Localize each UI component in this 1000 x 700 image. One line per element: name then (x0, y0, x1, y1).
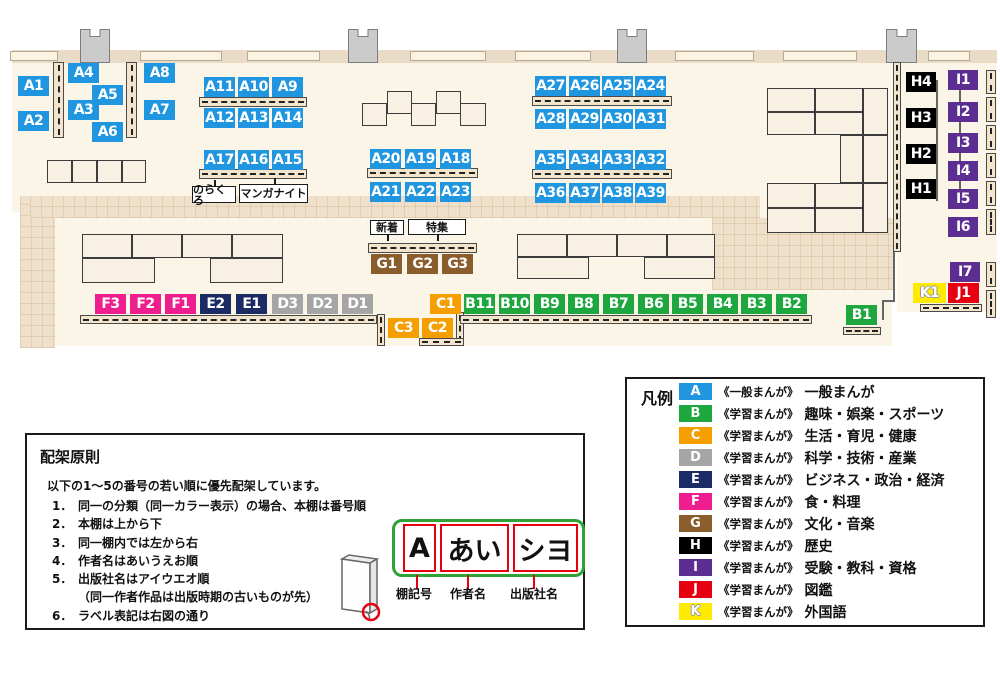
bookshelf-strip (199, 97, 307, 107)
shelf-label-g3: G3 (442, 254, 473, 274)
wall-line (893, 252, 895, 302)
legend-category-label: 図鑑 (805, 580, 833, 600)
principles-title: 配架原則 (40, 446, 100, 467)
legend-row-d: D《学習まんが》科学・技術・産業 (679, 449, 945, 466)
shelf-label-i2: I2 (948, 102, 978, 122)
shelf-label-a25: A25 (602, 76, 633, 96)
shelf-label-e1: E1 (236, 294, 267, 314)
shelf-label-h4: H4 (906, 72, 936, 92)
map-callout-3: 新着 (370, 220, 404, 235)
shelf-label-b3: B3 (741, 294, 772, 314)
shelf-label-a9: A9 (272, 77, 303, 97)
floor-map: 凡例 A《一般まんが》一般まんがB《学習まんが》趣味・娯楽・スポーツC《学習まん… (0, 0, 1000, 700)
furniture-block (767, 112, 815, 135)
shelf-label-a19: A19 (405, 149, 436, 169)
principle-number: 5． (52, 570, 78, 588)
wall-window (928, 51, 970, 61)
shelf-label-a1: A1 (18, 76, 49, 96)
shelf-label-a7: A7 (144, 100, 175, 120)
caption-publisher: 出版社名 (510, 585, 558, 602)
legend-scope: 《学習まんが》 (718, 494, 799, 510)
legend-row-j: J《学習まんが》図鑑 (679, 581, 945, 598)
shelf-label-a20: A20 (370, 149, 401, 169)
label-author: あい (440, 524, 509, 572)
shelf-label-a2: A2 (18, 111, 49, 131)
furniture-block (82, 234, 132, 258)
shelf-label-a8: A8 (144, 63, 175, 83)
callout-pointer (387, 235, 389, 241)
legend-scope: 《学習まんが》 (718, 428, 799, 444)
walkway (20, 196, 55, 348)
shelf-label-a4: A4 (68, 63, 99, 83)
furniture-block (767, 183, 815, 208)
shelf-label-i3: I3 (948, 133, 978, 153)
shelf-label-f2: F2 (130, 294, 161, 314)
legend-chip-d: D (679, 449, 712, 466)
map-callout-4: 特集 (408, 219, 466, 235)
legend-row-c: C《学習まんが》生活・育児・健康 (679, 427, 945, 444)
principle-item-3: 3．同一棚内では左から右 (52, 534, 366, 552)
furniture-block (767, 88, 815, 112)
shelf-label-a27: A27 (535, 76, 566, 96)
shelf-label-b9: B9 (534, 294, 565, 314)
legend-chip-g: G (679, 515, 712, 532)
principles-list: 1．同一の分類（同一カラー表示）の場合、本棚は番号順2．本棚は上から下3．同一棚… (52, 497, 366, 625)
furniture-block (72, 160, 97, 183)
floor-area (897, 212, 997, 312)
wall-window (515, 51, 591, 61)
legend-chip-a: A (679, 383, 712, 400)
bookshelf-strip (893, 62, 901, 252)
bookshelf-strip (53, 62, 64, 138)
wall-line (936, 80, 938, 201)
shelf-label-b7: B7 (603, 294, 634, 314)
shelf-label-a22: A22 (405, 182, 436, 202)
bookshelf-strip (368, 243, 477, 253)
legend-row-b: B《学習まんが》趣味・娯楽・スポーツ (679, 405, 945, 422)
bookshelf-strip (367, 168, 478, 178)
furniture-block (863, 183, 888, 233)
principle-text: 同一棚内では左から右 (78, 534, 198, 552)
furniture-block (517, 257, 589, 279)
bookshelf-strip (419, 338, 464, 346)
shelf-label-b11: B11 (464, 294, 495, 314)
wall-pillar (348, 29, 378, 63)
legend-row-i: I《学習まんが》受験・教科・資格 (679, 559, 945, 576)
legend-chip-h: H (679, 537, 712, 554)
legend-row-f: F《学習まんが》食・料理 (679, 493, 945, 510)
shelf-label-a24: A24 (635, 76, 666, 96)
legend-category-label: 受験・教科・資格 (805, 558, 917, 578)
label-shelf-code: A (403, 524, 436, 572)
legend-category-label: 生活・育児・健康 (805, 426, 917, 446)
shelf-label-d1: D1 (342, 294, 373, 314)
furniture-block (97, 160, 122, 183)
shelf-label-a6: A6 (92, 122, 123, 142)
wall-window (410, 51, 486, 61)
bookshelf-strip (199, 169, 307, 179)
wall-pillar (80, 29, 110, 63)
furniture-block (617, 234, 667, 257)
bookshelf-strip (532, 96, 672, 106)
furniture-block (667, 234, 715, 257)
legend-row-k: K《学習まんが》外国語 (679, 603, 945, 620)
wall-window (247, 51, 320, 61)
principle-number: 4． (52, 552, 78, 570)
shelf-label-e2: E2 (200, 294, 231, 314)
principle-item-2: 2．本棚は上から下 (52, 515, 366, 533)
legend-chip-b: B (679, 405, 712, 422)
furniture-block (815, 88, 863, 112)
legend-category-label: 趣味・娯楽・スポーツ (805, 404, 945, 424)
shelf-label-a31: A31 (635, 109, 666, 129)
callout-pointer (214, 180, 216, 186)
bookshelf-strip (986, 290, 996, 318)
principle-text: （同一作者作品は出版時期の古いものが先） (78, 588, 318, 606)
shelf-label-c3: C3 (388, 318, 419, 338)
furniture-block (132, 234, 182, 258)
furniture-block (567, 234, 617, 257)
legend-chip-f: F (679, 493, 712, 510)
shelf-label-d3: D3 (272, 294, 303, 314)
shelf-label-a29: A29 (569, 109, 600, 129)
legend-scope: 《学習まんが》 (718, 450, 799, 466)
furniture-block (460, 103, 486, 126)
shelf-label-b2: B2 (776, 294, 807, 314)
furniture-block (815, 208, 863, 233)
shelf-label-a36: A36 (535, 183, 566, 203)
furniture-block (815, 183, 863, 208)
wall-window (783, 51, 857, 61)
shelf-label-a15: A15 (272, 150, 303, 170)
legend-chip-c: C (679, 427, 712, 444)
principle-item-7: 6．ラベル表記は右図の通り (52, 607, 366, 625)
shelf-label-g2: G2 (407, 254, 438, 274)
shelf-label-a11: A11 (204, 77, 235, 97)
bookshelf-strip (986, 97, 996, 122)
wall-pillar (886, 29, 917, 63)
shelf-label-b8: B8 (568, 294, 599, 314)
bookshelf-strip (532, 169, 672, 179)
shelf-label-j1: J1 (948, 283, 979, 303)
legend-scope: 《学習まんが》 (718, 582, 799, 598)
shelf-label-i1: I1 (948, 70, 978, 90)
principle-number: 2． (52, 515, 78, 533)
legend-category-label: 科学・技術・産業 (805, 448, 917, 468)
shelf-label-k1: K1 (913, 283, 946, 303)
principle-text: 出版社名はアイウエオ順 (78, 570, 209, 588)
shelf-label-i6: I6 (948, 217, 978, 237)
legend-scope: 《学習まんが》 (718, 472, 799, 488)
legend-category-label: 食・料理 (805, 492, 861, 512)
legend-row-e: E《学習まんが》ビジネス・政治・経済 (679, 471, 945, 488)
bookshelf-strip (986, 181, 996, 206)
shelf-label-a10: A10 (238, 77, 269, 97)
principle-item-1: 1．同一の分類（同一カラー表示）の場合、本棚は番号順 (52, 497, 366, 515)
shelf-label-a37: A37 (569, 183, 600, 203)
shelf-label-a21: A21 (370, 182, 401, 202)
shelf-label-c2: C2 (422, 318, 453, 338)
shelf-label-g1: G1 (371, 254, 402, 274)
legend-scope: 《学習まんが》 (718, 516, 799, 532)
shelf-label-a30: A30 (602, 109, 633, 129)
wall-window (140, 51, 222, 61)
shelf-label-a13: A13 (238, 108, 269, 128)
bookshelf-strip (460, 315, 812, 324)
legend-category-label: 文化・音楽 (805, 514, 875, 534)
legend-panel: 凡例 A《一般まんが》一般まんがB《学習まんが》趣味・娯楽・スポーツC《学習まん… (625, 377, 985, 627)
callout-pointer (274, 178, 276, 184)
furniture-block (210, 258, 283, 283)
legend-scope: 《学習まんが》 (718, 560, 799, 576)
principle-text: 作者名はあいうえお順 (78, 552, 198, 570)
shelf-label-a28: A28 (535, 109, 566, 129)
shelf-label-h2: H2 (906, 144, 936, 164)
legend-row-g: G《学習まんが》文化・音楽 (679, 515, 945, 532)
furniture-block (232, 234, 283, 258)
principles-intro: 以下の1～5の番号の若い順に優先配架しています。 (47, 477, 326, 494)
furniture-block (517, 234, 567, 257)
principle-item-5: 5．出版社名はアイウエオ順 (52, 570, 366, 588)
legend-row-a: A《一般まんが》一般まんが (679, 383, 945, 400)
principles-panel: 配架原則 以下の1～5の番号の若い順に優先配架しています。 1．同一の分類（同一… (25, 433, 585, 630)
wall-window (675, 51, 754, 61)
bookshelf-strip (986, 125, 996, 150)
caption-author: 作者名 (450, 585, 486, 602)
legend-chip-e: E (679, 471, 712, 488)
principle-text: 同一の分類（同一カラー表示）の場合、本棚は番号順 (78, 497, 366, 515)
shelf-label-a12: A12 (204, 108, 235, 128)
furniture-block (122, 160, 146, 183)
callout-pointer (437, 235, 439, 241)
legend-scope: 《一般まんが》 (718, 384, 799, 400)
furniture-block (840, 135, 863, 183)
book-spine-icon (332, 551, 386, 627)
legend-scope: 《学習まんが》 (718, 604, 799, 620)
furniture-block (767, 208, 815, 233)
bookshelf-strip (986, 153, 996, 178)
shelf-label-h1: H1 (906, 179, 936, 199)
shelf-label-a18: A18 (440, 149, 471, 169)
shelf-label-a26: A26 (569, 76, 600, 96)
shelf-label-a17: A17 (204, 150, 235, 170)
shelf-label-a39: A39 (635, 183, 666, 203)
shelf-label-f3: F3 (95, 294, 126, 314)
wall-line (882, 302, 884, 320)
shelf-label-c1: C1 (430, 294, 461, 314)
shelf-label-a35: A35 (535, 150, 566, 170)
principle-text: 本棚は上から下 (78, 515, 162, 533)
legend-row-h: H《学習まんが》歴史 (679, 537, 945, 554)
shelf-label-a34: A34 (569, 150, 600, 170)
shelf-label-a23: A23 (440, 182, 471, 202)
furniture-block (47, 160, 72, 183)
legend-rows: A《一般まんが》一般まんがB《学習まんが》趣味・娯楽・スポーツC《学習まんが》生… (679, 383, 945, 620)
principle-number (52, 588, 78, 606)
map-callout-2: マンガナイト (239, 184, 308, 203)
shelf-label-b1: B1 (846, 305, 877, 325)
furniture-block (182, 234, 232, 258)
bookshelf-strip (126, 62, 137, 138)
legend-category-label: 外国語 (805, 602, 847, 622)
shelf-label-i5: I5 (948, 189, 978, 209)
furniture-block (644, 257, 715, 279)
shelf-label-i4: I4 (948, 161, 978, 181)
caption-shelf-code: 棚記号 (396, 585, 432, 602)
legend-scope: 《学習まんが》 (718, 538, 799, 554)
shelf-label-a38: A38 (602, 183, 633, 203)
bookshelf-strip (986, 70, 996, 94)
principle-number: 3． (52, 534, 78, 552)
shelf-label-f1: F1 (165, 294, 196, 314)
furniture-block (411, 103, 436, 126)
furniture-block (387, 91, 412, 114)
shelf-label-a32: A32 (635, 150, 666, 170)
map-callout-1: のらくろ (192, 186, 236, 203)
wall-pillar (617, 29, 647, 63)
bookshelf-strip (843, 327, 881, 335)
shelf-label-a16: A16 (238, 150, 269, 170)
principle-number: 6． (52, 607, 78, 625)
bookshelf-strip (377, 314, 385, 346)
shelf-label-a14: A14 (272, 108, 303, 128)
shelf-label-d2: D2 (307, 294, 338, 314)
legend-chip-j: J (679, 581, 712, 598)
shelf-label-b5: B5 (672, 294, 703, 314)
furniture-block (863, 135, 888, 183)
shelf-label-i7: I7 (950, 262, 980, 282)
shelf-label-h3: H3 (906, 108, 936, 128)
label-publisher: シヨ (513, 524, 578, 572)
label-example-plate: A あい シヨ (392, 519, 585, 577)
principle-number: 1． (52, 497, 78, 515)
principle-text: ラベル表記は右図の通り (78, 607, 210, 625)
legend-category-label: 歴史 (805, 536, 833, 556)
principle-item-6: （同一作者作品は出版時期の古いものが先） (52, 588, 366, 606)
legend-scope: 《学習まんが》 (718, 406, 799, 422)
shelf-label-a5: A5 (92, 85, 123, 105)
legend-title: 凡例 (641, 385, 673, 409)
bookshelf-strip (80, 315, 377, 324)
furniture-block (362, 103, 387, 126)
principle-item-4: 4．作者名はあいうえお順 (52, 552, 366, 570)
bookshelf-strip (986, 262, 996, 287)
legend-category-label: ビジネス・政治・経済 (805, 470, 945, 490)
legend-chip-k: K (679, 603, 712, 620)
furniture-block (863, 88, 888, 135)
furniture-block (815, 112, 863, 135)
legend-chip-i: I (679, 559, 712, 576)
shelf-label-a33: A33 (602, 150, 633, 170)
legend-category-label: 一般まんが (805, 382, 875, 402)
shelf-label-b4: B4 (707, 294, 738, 314)
shelf-label-b6: B6 (638, 294, 669, 314)
shelf-label-b10: B10 (499, 294, 530, 314)
wall-window (10, 51, 58, 61)
furniture-block (436, 91, 461, 114)
bookshelf-strip (920, 304, 982, 312)
furniture-block (82, 258, 155, 283)
bookshelf-strip (986, 209, 996, 235)
